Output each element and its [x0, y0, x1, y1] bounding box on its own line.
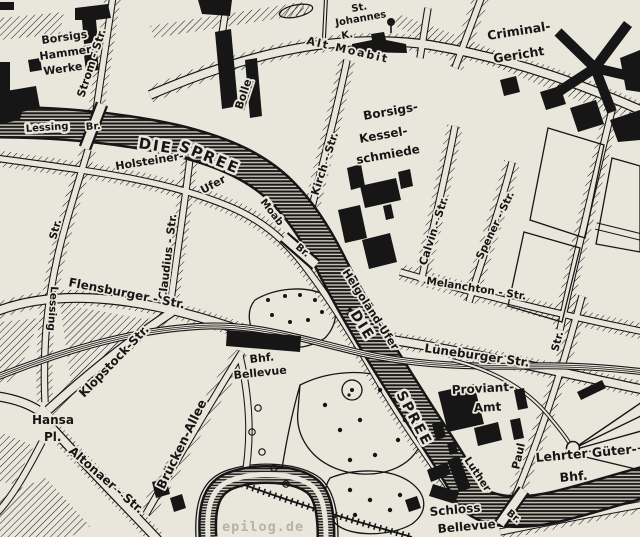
- label-kesselschmiede-2: Kessel-: [358, 124, 408, 146]
- label-altonaer-str: Altonaer - Str.: [66, 444, 147, 517]
- label-schloss-2: Bellevue: [437, 517, 496, 536]
- label-proviant-1: Proviant-: [451, 380, 514, 397]
- watermark-text: epilog.de: [222, 519, 304, 535]
- label-hansa-1: Hansa: [32, 413, 74, 427]
- label-hansa-2: Pl.: [44, 430, 61, 444]
- label-lehrter-1: Lehrter Güter-: [535, 441, 637, 465]
- map-canvas: Borsigs Hammer- Werke Strom - Str. St. J…: [0, 0, 640, 537]
- label-bhf-bellevue-1: Bhf.: [249, 350, 275, 365]
- label-borsig-hammerwerke-3: Werke: [43, 60, 84, 78]
- kesselschmiede-factory: [338, 164, 413, 269]
- label-criminal-gericht-1: Criminal-: [486, 18, 551, 43]
- historical-city-map: Borsigs Hammer- Werke Strom - Str. St. J…: [0, 0, 640, 537]
- label-bruecken-allee: Brücken-Allee: [153, 397, 209, 491]
- label-kesselschmiede-3: schmiede: [355, 142, 421, 167]
- label-lehrter-2: Bhf.: [559, 468, 588, 485]
- label-st-johannes-3: K.: [341, 29, 354, 42]
- label-kesselschmiede-1: Borsigs-: [362, 100, 419, 123]
- label-proviant-2: Amt: [473, 400, 501, 415]
- label-lessing-br-abbr: Br.: [85, 121, 101, 133]
- park-lens: [278, 2, 314, 21]
